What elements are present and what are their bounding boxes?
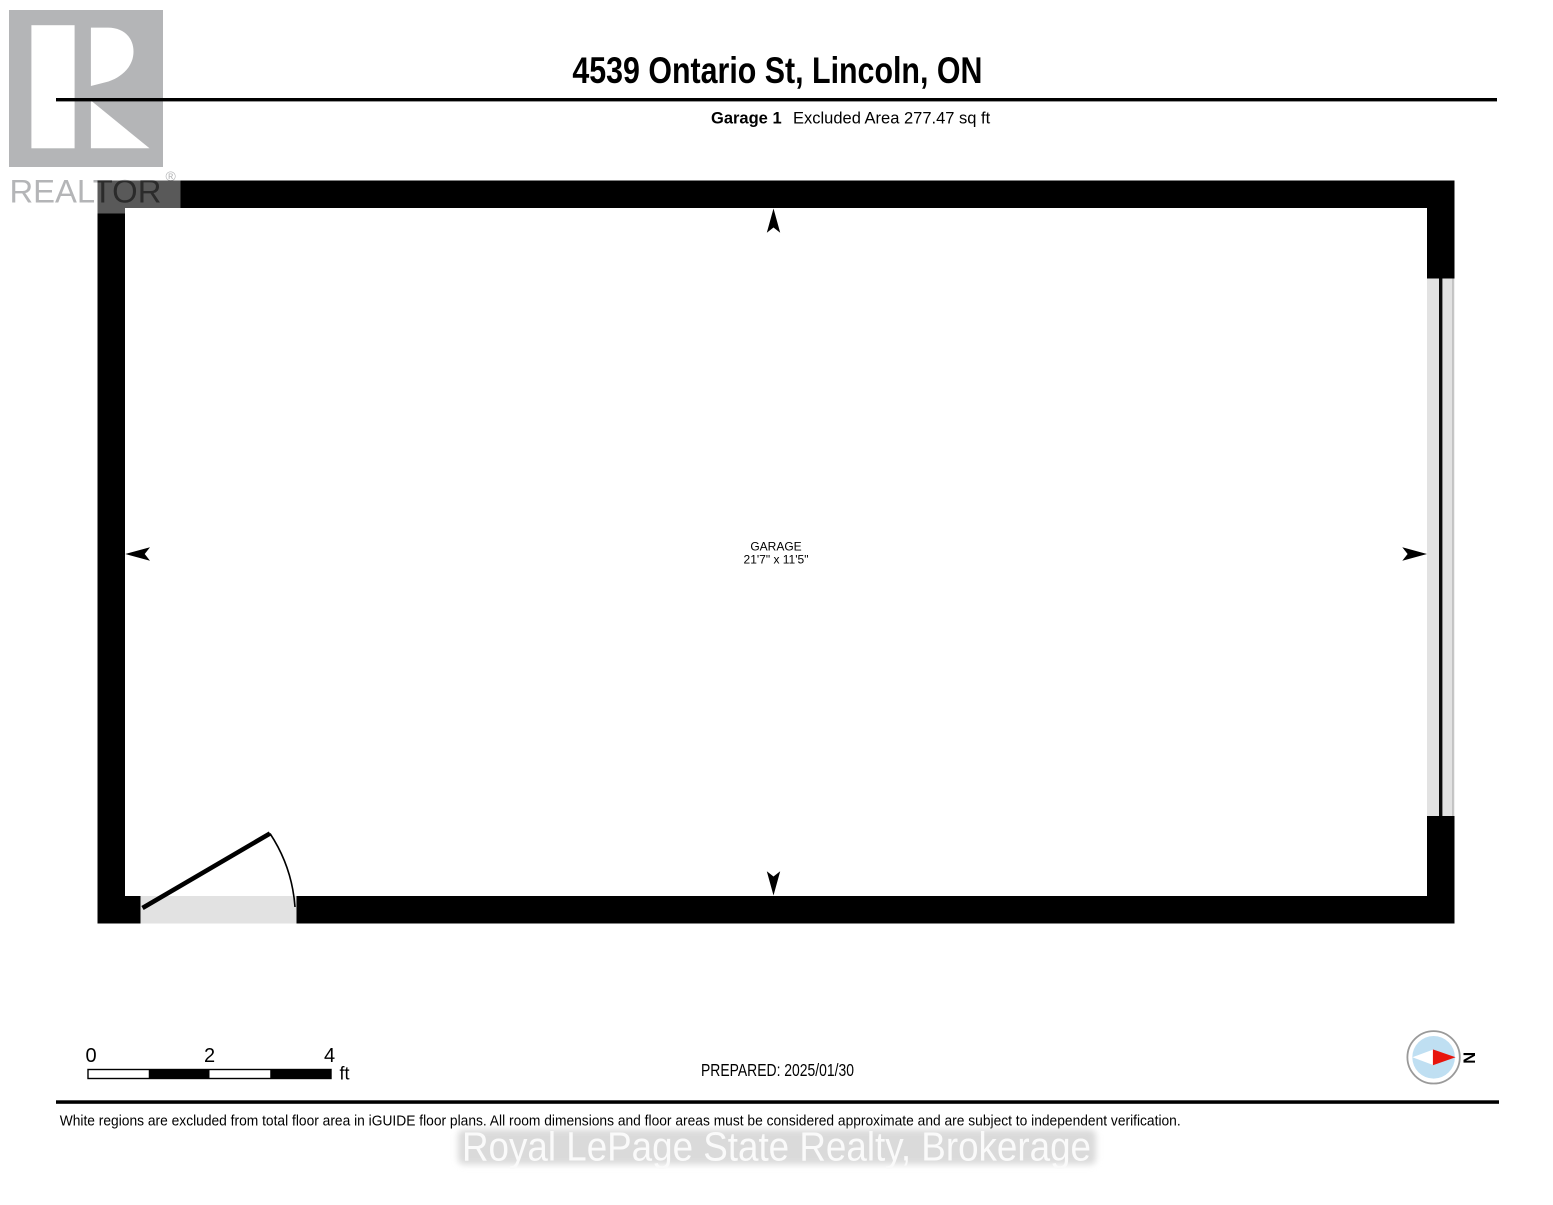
svg-text:21'7" x 11'5": 21'7" x 11'5" xyxy=(744,553,809,567)
svg-text:GARAGE: GARAGE xyxy=(750,539,801,553)
svg-text:4539 Ontario St, Lincoln, ON: 4539 Ontario St, Lincoln, ON xyxy=(572,50,982,91)
svg-text:Garage 1: Garage 1 xyxy=(711,110,782,128)
svg-text:N: N xyxy=(1459,1052,1477,1064)
svg-text:4: 4 xyxy=(324,1045,335,1067)
svg-text:PREPARED: 2025/01/30: PREPARED: 2025/01/30 xyxy=(701,1060,854,1080)
svg-text:0: 0 xyxy=(85,1045,96,1067)
svg-text:ft: ft xyxy=(340,1064,350,1084)
svg-text:2: 2 xyxy=(204,1045,215,1067)
svg-text:Excluded Area 277.47 sq ft: Excluded Area 277.47 sq ft xyxy=(793,110,991,128)
svg-text:Royal LePage State Realty, Bro: Royal LePage State Realty, Brokerage xyxy=(462,1124,1091,1170)
